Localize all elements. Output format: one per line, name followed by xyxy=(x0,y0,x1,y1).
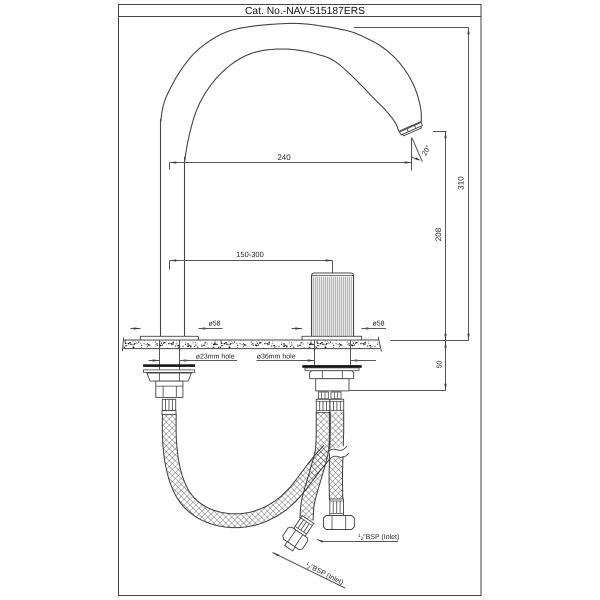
svg-text:ø36mm hole: ø36mm hole xyxy=(257,353,296,361)
svg-text:50: 50 xyxy=(437,361,444,369)
svg-text:Cat. No.-NAV-515187ERS: Cat. No.-NAV-515187ERS xyxy=(245,6,365,17)
svg-text:150-300: 150-300 xyxy=(236,250,264,259)
svg-text:208: 208 xyxy=(434,227,443,241)
svg-text:ø58: ø58 xyxy=(373,321,385,328)
svg-text:310: 310 xyxy=(457,176,466,190)
svg-text:ø23mm hole: ø23mm hole xyxy=(196,353,235,361)
svg-text:240: 240 xyxy=(277,153,291,162)
svg-text:12"BSP (Inlet): 12"BSP (Inlet) xyxy=(304,560,345,586)
svg-text:12"BSP (Inlet): 12"BSP (Inlet) xyxy=(358,532,399,540)
svg-text:20°: 20° xyxy=(421,144,432,157)
svg-text:ø58: ø58 xyxy=(209,321,221,328)
